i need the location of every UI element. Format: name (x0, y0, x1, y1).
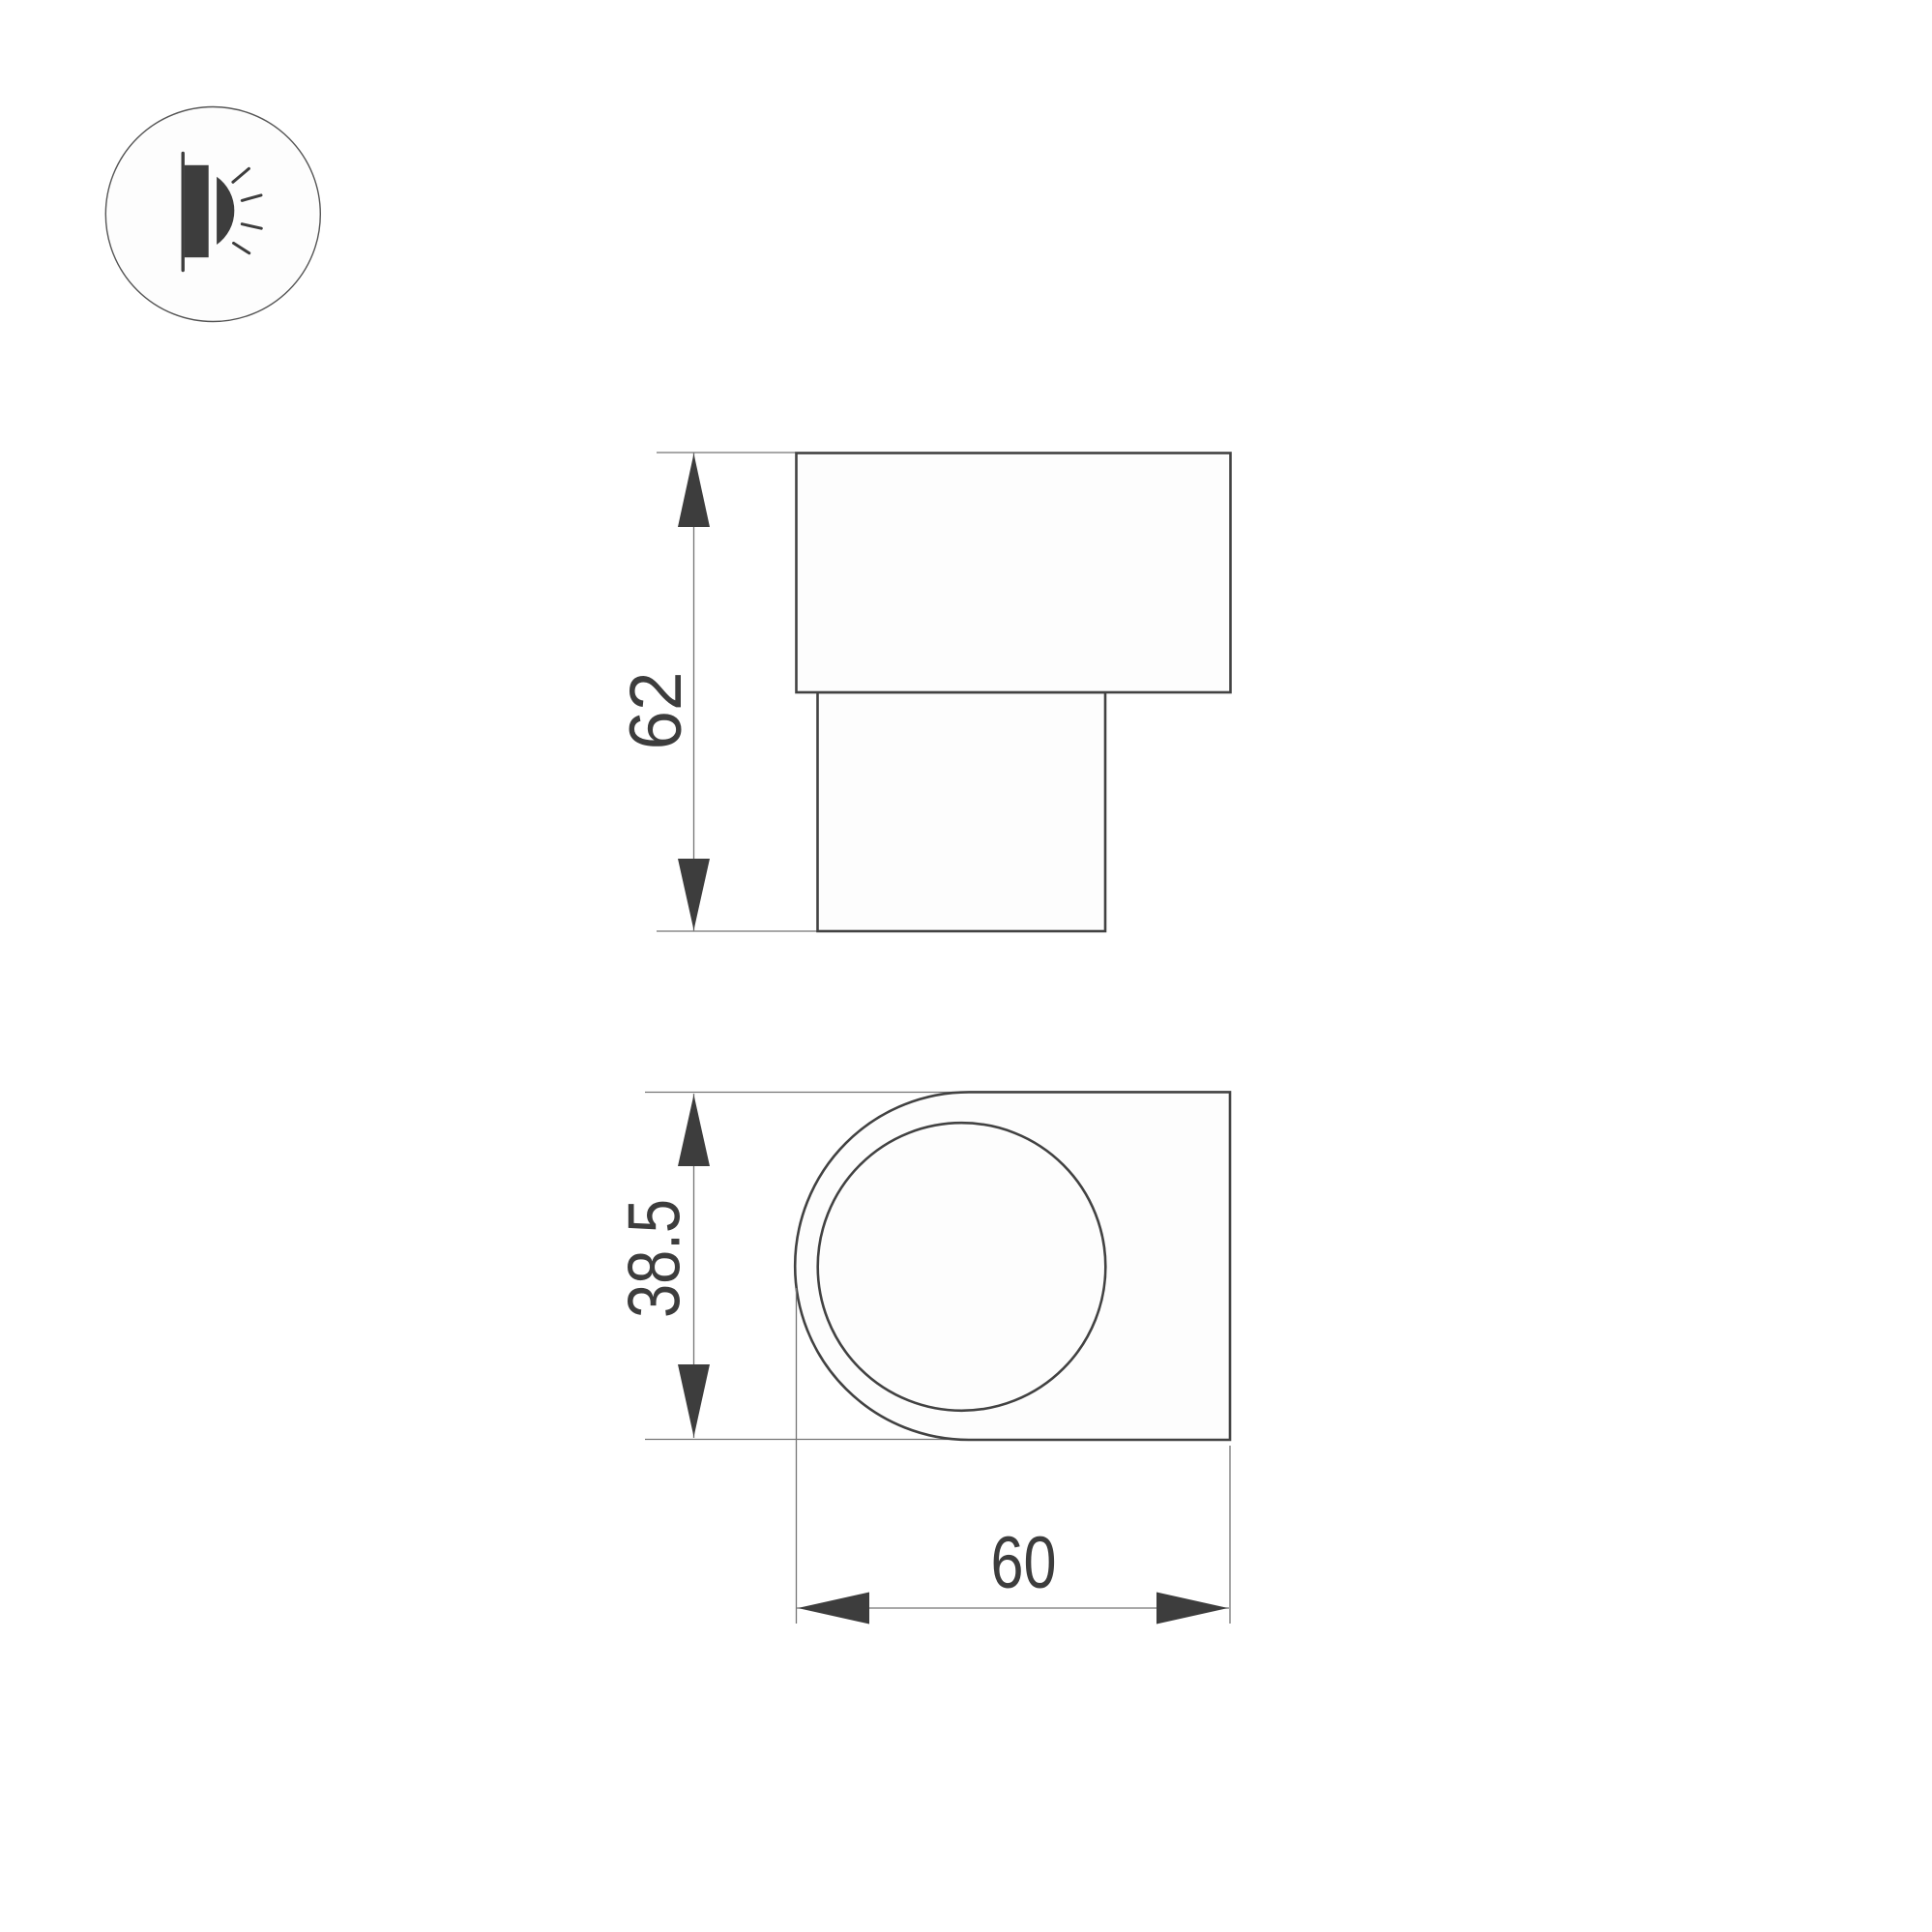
svg-text:38.5: 38.5 (614, 1199, 696, 1318)
svg-text:62: 62 (615, 672, 697, 750)
svg-text:60: 60 (991, 1522, 1057, 1604)
